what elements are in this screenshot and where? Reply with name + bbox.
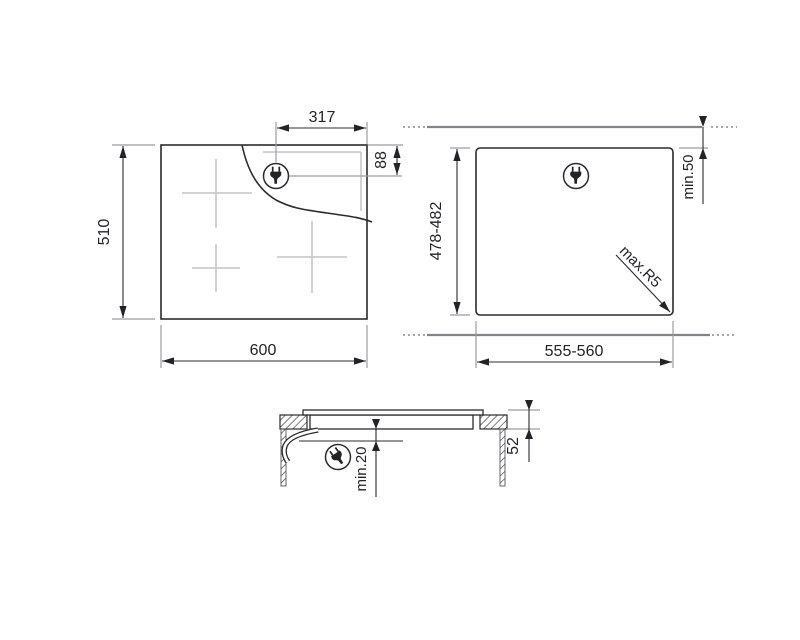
- hob-body-section: [310, 415, 473, 429]
- section-view: min.20 52: [280, 400, 540, 497]
- cutout-view: 478-482 555-560 min.50 max.R5: [403, 116, 737, 368]
- dim-cutout-depth: 478-482: [428, 148, 470, 315]
- dim-label-600: 600: [250, 342, 277, 359]
- dim-label-52: 52: [505, 437, 522, 455]
- supply-cable: [284, 430, 318, 462]
- dim-rear-clearance: min.50: [679, 116, 708, 204]
- power-plug-icon: [264, 164, 289, 189]
- diagram-svg: 317 88 510 600: [0, 0, 800, 640]
- power-plug-icon: [321, 440, 356, 475]
- dim-label-min50: min.50: [680, 154, 697, 199]
- installation-diagram: 317 88 510 600: [0, 0, 800, 640]
- dim-cutout-width: 555-560: [476, 321, 673, 368]
- dim-label-478-482: 478-482: [428, 202, 445, 261]
- power-plug-icon: [564, 164, 589, 189]
- dim-depth-510: 510: [96, 145, 155, 319]
- hob-glass-section: [303, 410, 483, 415]
- dim-label-510: 510: [96, 219, 113, 246]
- dim-label-317: 317: [309, 109, 336, 126]
- dim-width-600: 600: [161, 325, 367, 368]
- dim-built-in-height: 52: [505, 400, 540, 462]
- dim-label-555-560: 555-560: [545, 343, 604, 360]
- dim-label-88: 88: [373, 151, 390, 169]
- dim-label-min20: min.20: [353, 446, 370, 491]
- cabinet-wall-sections: [281, 429, 505, 486]
- top-view: 317 88 510 600: [96, 109, 403, 368]
